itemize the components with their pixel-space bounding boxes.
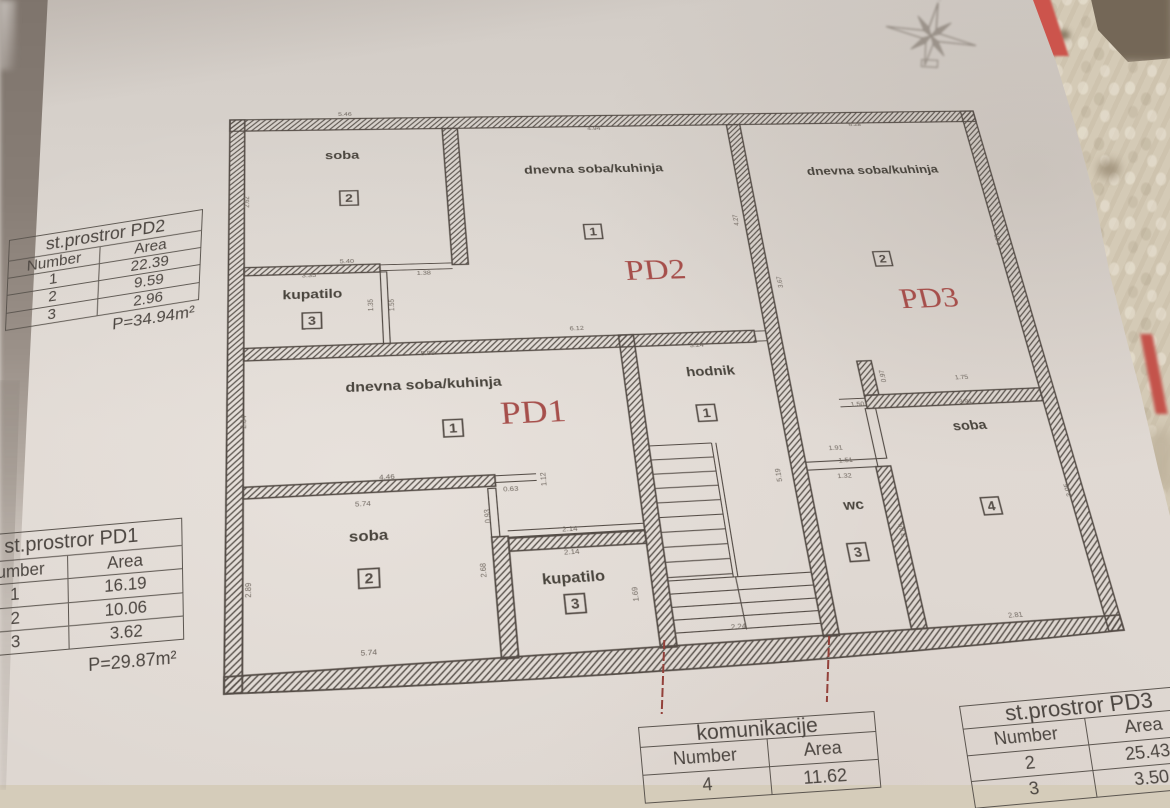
svg-text:5.19: 5.19 — [774, 468, 785, 482]
svg-text:2: 2 — [345, 192, 353, 205]
svg-text:2.89: 2.89 — [244, 582, 253, 598]
svg-text:2.62: 2.62 — [243, 196, 251, 208]
svg-text:3.91: 3.91 — [958, 398, 974, 406]
svg-text:2.68: 2.68 — [479, 562, 489, 578]
svg-text:1.75: 1.75 — [954, 374, 970, 381]
svg-text:PD3: PD3 — [896, 281, 962, 315]
svg-text:2.81: 2.81 — [1007, 611, 1024, 620]
svg-text:1.69: 1.69 — [631, 586, 642, 602]
svg-text:dnevna soba/kuhinja: dnevna soba/kuhinja — [345, 373, 503, 395]
svg-text:1.32: 1.32 — [837, 472, 853, 480]
svg-text:3.35: 3.35 — [302, 272, 317, 279]
svg-text:0.93: 0.93 — [483, 508, 493, 523]
svg-text:1.12: 1.12 — [539, 472, 549, 486]
svg-text:4.27: 4.27 — [732, 214, 742, 226]
svg-text:5.40: 5.40 — [340, 258, 355, 265]
svg-text:1: 1 — [589, 225, 598, 238]
svg-text:5.74: 5.74 — [360, 648, 377, 658]
svg-text:1.55: 1.55 — [388, 298, 397, 311]
svg-text:2: 2 — [878, 253, 888, 266]
svg-text:soba: soba — [951, 417, 989, 434]
svg-text:5.46: 5.46 — [338, 112, 352, 118]
svg-text:3.65: 3.65 — [898, 523, 909, 538]
svg-text:5.74: 5.74 — [355, 500, 372, 509]
svg-text:2: 2 — [364, 570, 374, 587]
svg-text:1: 1 — [449, 421, 459, 436]
svg-text:soba: soba — [349, 526, 390, 546]
svg-text:3.67: 3.67 — [775, 276, 785, 288]
svg-text:dnevna soba/kuhinja: dnevna soba/kuhinja — [805, 163, 940, 178]
svg-text:1: 1 — [702, 406, 712, 421]
svg-text:soba: soba — [325, 148, 360, 162]
svg-text:2.14: 2.14 — [564, 548, 581, 557]
svg-text:3.24: 3.24 — [689, 342, 705, 349]
svg-text:hodnik: hodnik — [685, 362, 737, 379]
svg-text:0.97: 0.97 — [878, 369, 889, 382]
svg-text:kupatilo: kupatilo — [282, 286, 342, 302]
svg-text:2.24: 2.24 — [730, 623, 747, 632]
svg-text:PD2: PD2 — [623, 252, 688, 286]
svg-text:dnevna soba/kuhinja: dnevna soba/kuhinja — [523, 161, 664, 176]
svg-text:3: 3 — [570, 595, 581, 612]
svg-text:3: 3 — [308, 314, 317, 328]
svg-text:N: N — [936, 0, 941, 3]
svg-text:4.94: 4.94 — [587, 126, 601, 132]
svg-text:1.38: 1.38 — [417, 270, 432, 277]
svg-text:1.51: 1.51 — [838, 456, 854, 464]
svg-text:wc: wc — [841, 496, 866, 513]
svg-text:2.14: 2.14 — [562, 525, 579, 534]
svg-text:1.91: 1.91 — [828, 444, 844, 452]
svg-text:2.34: 2.34 — [240, 415, 249, 429]
svg-text:0.63: 0.63 — [503, 485, 519, 494]
svg-text:6.12: 6.12 — [569, 325, 584, 332]
svg-text:4.46: 4.46 — [379, 473, 395, 482]
svg-text:kupatilo: kupatilo — [541, 567, 606, 588]
svg-text:PD1: PD1 — [499, 392, 568, 431]
svg-text:4: 4 — [986, 498, 998, 513]
svg-text:3: 3 — [852, 544, 863, 560]
svg-text:5.98: 5.98 — [420, 350, 436, 358]
svg-text:6.28: 6.28 — [848, 122, 862, 128]
svg-text:1.50: 1.50 — [850, 401, 866, 409]
svg-text:1.35: 1.35 — [367, 298, 376, 311]
